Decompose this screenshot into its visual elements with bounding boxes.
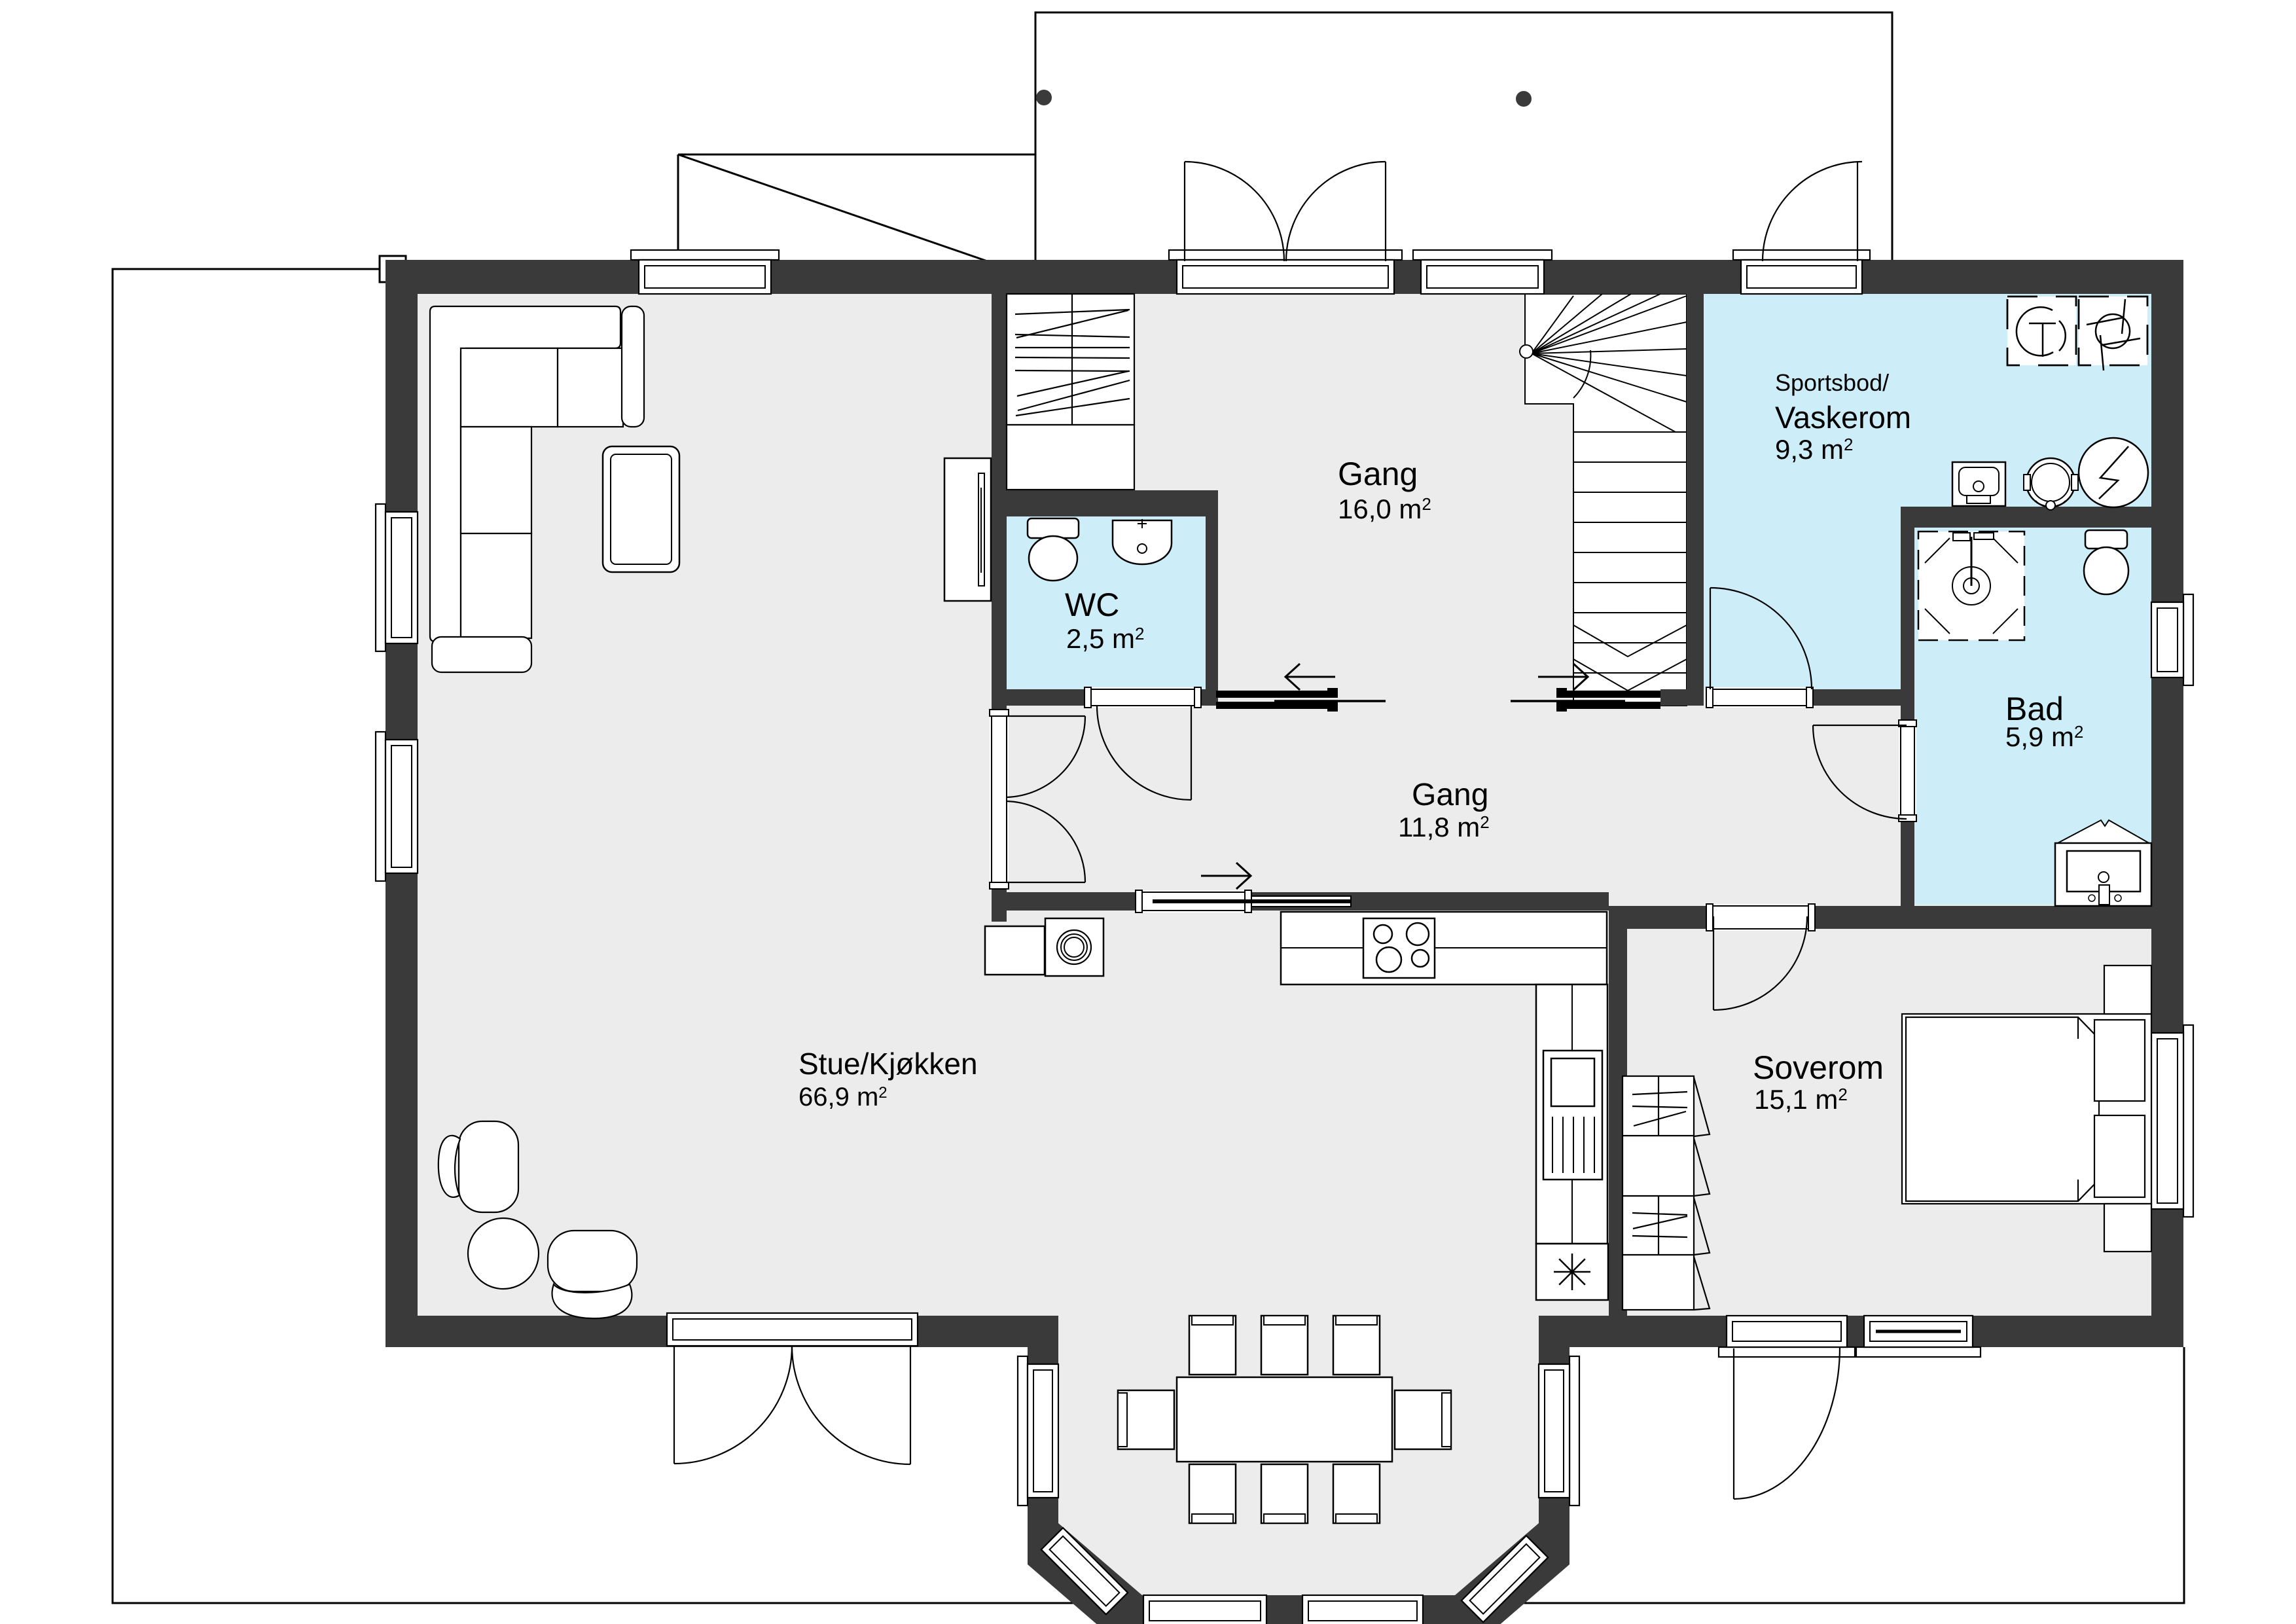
svg-text:2,5 m2: 2,5 m2 bbox=[1066, 623, 1145, 654]
svg-text:15,1 m2: 15,1 m2 bbox=[1754, 1084, 1848, 1115]
svg-text:WC: WC bbox=[1065, 586, 1119, 623]
svg-text:16,0 m2: 16,0 m2 bbox=[1338, 494, 1431, 524]
svg-text:5,9 m2: 5,9 m2 bbox=[2005, 721, 2084, 752]
svg-text:Vaskerom: Vaskerom bbox=[1775, 400, 1911, 435]
svg-text:Gang: Gang bbox=[1338, 456, 1418, 492]
svg-text:Sportsbod/: Sportsbod/ bbox=[1775, 369, 1889, 396]
svg-text:66,9 m2: 66,9 m2 bbox=[798, 1083, 888, 1111]
svg-text:9,3 m2: 9,3 m2 bbox=[1775, 434, 1854, 465]
svg-text:Soverom: Soverom bbox=[1753, 1049, 1884, 1086]
svg-text:11,8 m2: 11,8 m2 bbox=[1398, 812, 1490, 842]
svg-text:Stue/Kjøkken: Stue/Kjøkken bbox=[798, 1047, 978, 1081]
svg-text:Gang: Gang bbox=[1412, 778, 1488, 812]
